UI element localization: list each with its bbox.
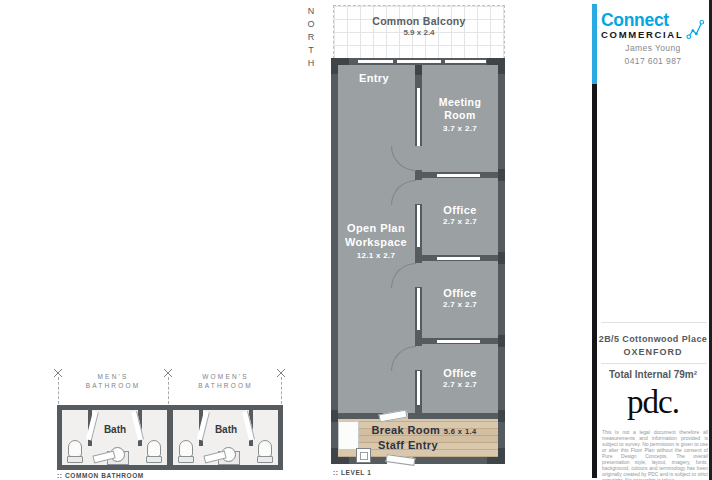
floorplan-page: NORTH Common Balcony 5.9 x 2.4 <box>0 0 712 480</box>
bath-label: Bath <box>203 424 249 435</box>
glass-partition <box>417 371 420 405</box>
sidebar-rule <box>601 363 707 364</box>
door-opening <box>415 346 422 370</box>
north-label: NORTH <box>306 6 316 71</box>
womens-line2: BATHROOM <box>168 381 283 390</box>
mens-bathroom-label: MEN'S BATHROOM <box>58 372 168 390</box>
window <box>358 60 393 63</box>
wall-cap <box>498 410 505 422</box>
womens-bathroom-label: WOMEN'S BATHROOM <box>168 372 283 390</box>
glass-partition <box>437 257 480 260</box>
wall-cap <box>498 448 505 464</box>
address-line1: 2B/5 Cottonwood Place <box>597 334 709 344</box>
common-bathroom-caption: :: COMMON BATHROOM <box>57 472 144 479</box>
wall-segment <box>167 405 173 470</box>
office-dims: 2.7 x 2.7 <box>426 217 494 226</box>
wall-cap <box>498 335 505 347</box>
office-label: Office <box>426 204 494 216</box>
womens-line1: WOMEN'S <box>168 372 283 381</box>
address-line2: OXENFORD <box>597 347 709 357</box>
open-plan-label: Open Plan Workspace <box>336 221 416 249</box>
glass-partition <box>417 88 420 146</box>
door-opening <box>415 146 422 170</box>
office-dims: 2.7 x 2.7 <box>426 300 494 309</box>
balcony-dims: 5.9 x 2.4 <box>334 28 504 37</box>
meeting-room-label: Meeting Room <box>426 96 494 122</box>
wall-cap <box>498 252 505 264</box>
staff-entry-label: Staff Entry <box>338 439 478 451</box>
entry-label: Entry <box>339 72 409 84</box>
wall-cap <box>331 448 338 464</box>
door-opening <box>415 180 422 204</box>
door-opening <box>415 263 422 287</box>
open-plan-dims: 12.1 x 2.7 <box>336 251 416 260</box>
toilet-fixture <box>146 440 162 463</box>
office-dims: 2.7 x 2.7 <box>426 380 494 389</box>
balcony-name: Common Balcony <box>334 15 504 27</box>
glass-partition <box>437 174 480 177</box>
break-room-label: Break Room <box>371 424 440 436</box>
wall-cap <box>498 58 505 74</box>
toilet-fixture <box>67 440 83 463</box>
level-caption: :: LEVEL 1 <box>333 469 371 476</box>
floorplan: Entry Meeting Room 3.7 x 2.7 Office 2.7 … <box>331 58 505 464</box>
total-internal: Total Internal 79m² <box>597 369 709 380</box>
glass-partition <box>417 205 420 247</box>
agent-name: James Young <box>597 43 709 53</box>
office-label: Office <box>426 367 494 379</box>
brand-name: Connect <box>601 12 683 29</box>
window <box>445 60 486 63</box>
wall-cap <box>415 65 422 75</box>
bath-label: Bath <box>92 424 138 435</box>
toilet-fixture <box>178 440 194 463</box>
toilet-fixture <box>257 440 273 463</box>
office-label: Office <box>426 287 494 299</box>
sink-basin <box>360 452 368 460</box>
sidebar-rule <box>601 322 707 323</box>
window <box>397 60 441 63</box>
wall-cap <box>498 169 505 181</box>
graph-nodes-icon <box>686 14 705 45</box>
brand-logo: Connect COMMERCIAL <box>601 12 705 45</box>
glass-partition <box>417 288 420 330</box>
break-room-dims: 5.6 x 1.4 <box>444 427 477 436</box>
brand-sub: COMMERCIAL <box>601 29 683 40</box>
agent-phone: 0417 601 987 <box>597 56 709 66</box>
meeting-room-dims: 3.7 x 2.7 <box>426 124 494 133</box>
wall-cap <box>331 58 338 74</box>
wall-cap <box>331 410 338 422</box>
glass-partition <box>437 340 480 343</box>
mens-line1: MEN'S <box>58 372 168 381</box>
mens-line2: BATHROOM <box>58 381 168 390</box>
disclaimer-text: This is not a legal document therefore a… <box>602 429 708 480</box>
common-bathroom-plan: Bath Bath <box>57 405 283 470</box>
pdc-logo: pdc. <box>597 384 709 421</box>
common-balcony-area: Common Balcony 5.9 x 2.4 <box>333 5 505 59</box>
